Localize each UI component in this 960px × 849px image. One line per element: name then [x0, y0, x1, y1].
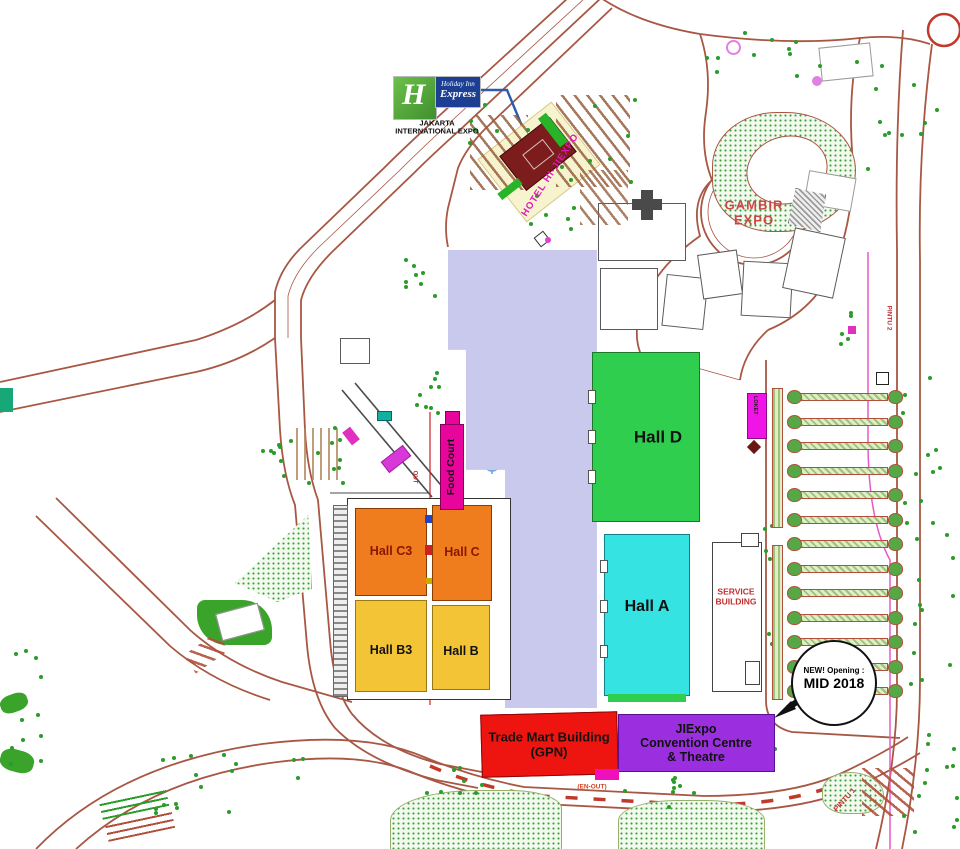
- lawn-bottom-right: [618, 800, 765, 849]
- hall-a-notch: [600, 600, 608, 613]
- logo-brand-line1: Holiday Inn: [436, 80, 480, 88]
- tree-dot: [419, 282, 423, 286]
- tree-dot: [20, 718, 24, 722]
- hall-a-label: Hall A: [625, 598, 670, 616]
- tree-dot: [230, 769, 234, 773]
- northeast-building: [818, 42, 873, 81]
- tree-dot: [282, 474, 286, 478]
- hotel-parking-comb-east: [580, 170, 628, 225]
- tree-dot: [874, 87, 878, 91]
- tree-dot: [925, 768, 929, 772]
- hall-d-notch: [588, 430, 596, 444]
- food-court-label: Food Court: [446, 439, 458, 496]
- parking-row-divider: [800, 540, 888, 548]
- tree-dot: [474, 791, 478, 795]
- tree-dot: [795, 74, 799, 78]
- gambir-line2: EXPO: [725, 213, 784, 228]
- tree-dot: [951, 764, 955, 768]
- tree-dot: [338, 458, 342, 462]
- parking-row-cap: [888, 464, 903, 478]
- marker-pink-ring: [726, 40, 741, 55]
- tree-dot: [36, 713, 40, 717]
- hall-gap-icon-blue: [425, 515, 432, 523]
- tree-dot: [764, 549, 768, 553]
- out-label: OUT: [411, 471, 418, 484]
- parking-row-cap: [888, 513, 903, 527]
- tree-dot: [938, 466, 942, 470]
- tree-dot: [307, 481, 311, 485]
- tree-dot: [39, 675, 43, 679]
- marker-magenta-dot: [545, 237, 551, 243]
- tree-dot: [788, 52, 792, 56]
- gate-kiosk-east: [876, 372, 889, 385]
- service-detail-bottom: [745, 661, 760, 685]
- hall-d-notch: [588, 470, 596, 484]
- convention-line1: JIExpo: [640, 722, 752, 736]
- parking-row-cap: [888, 488, 903, 502]
- parking-row-divider: [800, 516, 888, 524]
- tree-dot: [927, 733, 931, 737]
- parking-row-divider: [800, 614, 888, 622]
- tree-dot: [468, 141, 472, 145]
- parking-row-cap: [888, 660, 903, 674]
- tree-dot: [846, 337, 850, 341]
- parking-row-cap: [787, 537, 802, 551]
- tree-dot: [452, 768, 456, 772]
- parking-row-cap: [787, 464, 802, 478]
- lawn-bottom-center: [390, 790, 562, 849]
- tree-dot: [483, 103, 487, 107]
- tree-dot: [629, 180, 633, 184]
- parking-row-cap: [787, 439, 802, 453]
- parking-row-cap: [787, 390, 802, 404]
- tree-dot: [928, 376, 932, 380]
- tree-dot: [566, 217, 570, 221]
- hall-c-label: Hall C: [444, 545, 479, 559]
- parking-row-cap: [888, 537, 903, 551]
- tree-dot: [672, 786, 676, 790]
- tree-dot: [480, 783, 484, 787]
- parking-row-cap: [888, 439, 903, 453]
- tree-dot: [931, 521, 935, 525]
- tree-dot: [269, 449, 273, 453]
- tree-dot: [903, 501, 907, 505]
- parking-strip-vertical: [772, 388, 783, 528]
- parking-row-cap: [888, 635, 903, 649]
- tree-dot: [437, 385, 441, 389]
- parking-row-divider: [800, 491, 888, 499]
- convention-line3: & Theatre: [640, 750, 752, 764]
- hall-gap-icon-yellow: [426, 578, 432, 584]
- marker-teal: [377, 411, 392, 421]
- tree-dot: [429, 385, 433, 389]
- parking-row-cap: [888, 562, 903, 576]
- tree-dot: [154, 811, 158, 815]
- tree-dot: [626, 134, 630, 138]
- tree-dot: [404, 285, 408, 289]
- food-court-annex: [445, 411, 460, 425]
- tree-dot: [316, 451, 320, 455]
- trade-mart-label: Trade Mart Building (GPN): [488, 730, 609, 759]
- logo-blue-box: Holiday Inn Express: [435, 76, 481, 108]
- small-building-west: [340, 338, 370, 364]
- tree-dot: [588, 159, 592, 163]
- trade-mart-line2: (GPN): [488, 745, 609, 760]
- tree-dot: [572, 206, 576, 210]
- convention-centre-label: JIExpo Convention Centre & Theatre: [640, 722, 752, 764]
- loket-booth: LOKET: [747, 393, 767, 439]
- tree-dot: [418, 393, 422, 397]
- tree-dot: [569, 227, 573, 231]
- parking-row-cap: [787, 513, 802, 527]
- tree-dot: [172, 756, 176, 760]
- tree-dot: [934, 448, 938, 452]
- tree-dot: [716, 56, 720, 60]
- tree-dot: [955, 796, 959, 800]
- parking-row-divider: [800, 589, 888, 597]
- parking-row-cap: [787, 488, 802, 502]
- gambir-line1: GAMBIR: [725, 198, 784, 213]
- tree-dot: [332, 467, 336, 471]
- logo-brand-line2: Express: [436, 88, 480, 100]
- tree-dot: [227, 810, 231, 814]
- north-building-mast2: [632, 199, 662, 210]
- tree-dot: [955, 818, 959, 822]
- tree-dot: [593, 104, 597, 108]
- tree-dot: [952, 825, 956, 829]
- tree-dot: [935, 108, 939, 112]
- expo-subtitle: JAKARTA INTERNATIONAL EXPO: [395, 120, 478, 137]
- tree-dot: [900, 133, 904, 137]
- parking-row-cap: [787, 562, 802, 576]
- parking-row-cap: [787, 635, 802, 649]
- tree-dot: [902, 814, 906, 818]
- parking-row-cap: [787, 415, 802, 429]
- tree-dot: [794, 40, 798, 44]
- trade-mart-line1: Trade Mart Building: [488, 730, 609, 745]
- hall-a-green-apron: [608, 694, 686, 702]
- marker-magenta-east: [848, 326, 856, 334]
- new-badge-line1: NEW! Opening :: [793, 666, 875, 675]
- hall-a-notch: [600, 560, 608, 573]
- tree-dot: [296, 776, 300, 780]
- hall-a-notch: [600, 645, 608, 658]
- tree-dot: [926, 453, 930, 457]
- tree-dot: [338, 438, 342, 442]
- parking-row-divider: [800, 467, 888, 475]
- gambir-expo-label: GAMBIR EXPO: [725, 198, 784, 227]
- parking-row-cap: [787, 586, 802, 600]
- service-building: [712, 542, 762, 692]
- tree-dot: [278, 445, 282, 449]
- site-map: H Holiday Inn Express JAKARTA INTERNATIO…: [0, 0, 960, 849]
- tree-dot: [692, 791, 696, 795]
- expo-subtitle-line2: INTERNATIONAL EXPO: [395, 128, 478, 136]
- hall-gap-icon-red: [425, 545, 432, 555]
- new-opening-badge: NEW! Opening : MID 2018: [791, 640, 877, 726]
- tree-dot: [529, 222, 533, 226]
- parking-row-cap: [787, 611, 802, 625]
- tree-dot: [10, 746, 14, 750]
- service-building-label: SERVICE BUILDING: [715, 587, 756, 606]
- tree-dot: [743, 31, 747, 35]
- tree-dot: [952, 747, 956, 751]
- tree-dot: [770, 38, 774, 42]
- new-badge-line2: MID 2018: [793, 675, 875, 691]
- parking-row-divider: [800, 393, 888, 401]
- tree-dot: [404, 258, 408, 262]
- tree-dot: [39, 734, 43, 738]
- tree-dot: [923, 121, 927, 125]
- tree-dot: [34, 656, 38, 660]
- tree-dot: [917, 578, 921, 582]
- parking-row-cap: [888, 611, 903, 625]
- parking-row-cap: [888, 684, 903, 698]
- service-detail-top: [741, 533, 759, 547]
- tree-dot: [787, 47, 791, 51]
- halls-loading-strip: [333, 505, 348, 697]
- parking-comb-gate1: [862, 768, 914, 816]
- gambir-building-2: [697, 249, 743, 299]
- tree-dot: [920, 608, 924, 612]
- tree-dot: [412, 264, 416, 268]
- parking-row-divider: [800, 418, 888, 426]
- tree-dot: [818, 64, 822, 68]
- marker-magenta-enout: [595, 769, 619, 780]
- tree-dot: [458, 766, 462, 770]
- hall-d-label: Hall D: [634, 427, 682, 446]
- tree-dot: [919, 132, 923, 136]
- tree-dot: [415, 403, 419, 407]
- hall-c3-label: Hall C3: [370, 544, 412, 558]
- gate-pintu2-label: PINTU 2: [885, 306, 892, 331]
- service-line2: BUILDING: [715, 597, 756, 607]
- tree-dot: [855, 60, 859, 64]
- tree-dot: [495, 129, 499, 133]
- hall-b-label: Hall B: [443, 644, 478, 658]
- tree-dot: [261, 449, 265, 453]
- logo-h-glyph: H: [402, 78, 425, 112]
- tree-dot: [21, 738, 25, 742]
- en-out-label: (EN-OUT): [577, 783, 606, 790]
- tree-dot: [194, 773, 198, 777]
- tree-dot: [849, 314, 853, 318]
- tree-dot: [175, 806, 179, 810]
- parking-row-divider: [800, 565, 888, 573]
- hall-d-notch: [588, 390, 596, 404]
- tree-dot: [301, 757, 305, 761]
- tree-dot: [918, 603, 922, 607]
- tree-dot: [883, 133, 887, 137]
- loket-label: LOKET: [752, 396, 758, 415]
- parking-strip-vertical: [772, 545, 783, 700]
- tree-dot: [333, 426, 337, 430]
- parking-row-cap: [888, 586, 903, 600]
- parking-row-divider: [800, 442, 888, 450]
- tree-dot: [671, 790, 675, 794]
- parking-row-cap: [888, 390, 903, 404]
- tree-dot: [840, 332, 844, 336]
- parking-row-cap: [888, 415, 903, 429]
- tree-dot: [878, 120, 882, 124]
- hall-b3-label: Hall B3: [370, 643, 412, 657]
- tree-dot: [912, 83, 916, 87]
- convention-line2: Convention Centre: [640, 736, 752, 750]
- green-left-gate: [0, 388, 13, 412]
- tree-dot: [866, 167, 870, 171]
- tree-dot: [623, 789, 627, 793]
- tree-dot: [909, 682, 913, 686]
- logo-green-square: H: [393, 76, 437, 120]
- tree-dot: [763, 527, 767, 531]
- north-building-2: [600, 268, 658, 330]
- marker-pink-dot: [812, 76, 822, 86]
